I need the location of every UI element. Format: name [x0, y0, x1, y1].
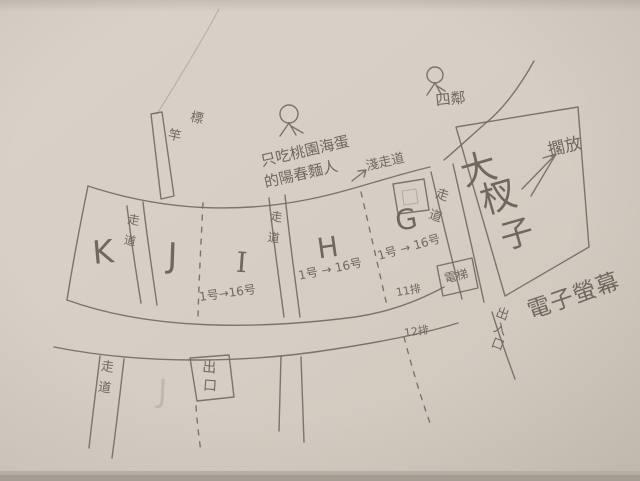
table-below-paper [0, 475, 640, 481]
label-section-i: I [235, 246, 248, 280]
label-neighbors-label: 四鄰 [435, 89, 467, 110]
photo-of-hand-drawn-map: 標竿只吃桃園海蛋的陽春麵人四鄰淺走道擱放大杈子電子螢幕電梯出入口出口11排12排… [0, 0, 640, 481]
sketch-map-svg: 標竿只吃桃園海蛋的陽春麵人四鄰淺走道擱放大杈子電子螢幕電梯出入口出口11排12排… [0, 0, 640, 481]
